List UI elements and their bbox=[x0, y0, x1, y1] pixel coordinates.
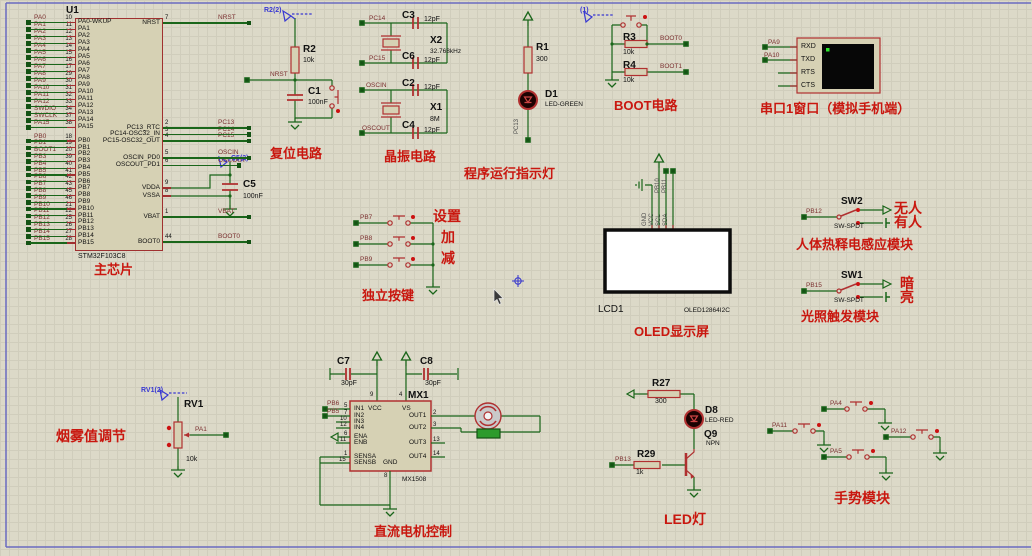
ref-r2: R2 bbox=[303, 45, 316, 55]
schematic-canvas: { "captions": { "chip": "主芯片", "reset": … bbox=[0, 0, 1032, 556]
net-pa12: PA12 bbox=[891, 429, 906, 436]
pin-stub-PA1 bbox=[67, 29, 75, 30]
mxn-vs: 4 bbox=[399, 392, 402, 398]
wire-OSCIN_PD0 bbox=[163, 157, 249, 158]
val-c1: 100nF bbox=[308, 99, 328, 106]
pin-stub-PB14 bbox=[67, 236, 75, 237]
ref-r4: R4 bbox=[623, 61, 636, 71]
terminal-OSCOUT_PD1 bbox=[237, 163, 242, 168]
caption-pir: 人体热释电感应模块 bbox=[796, 238, 913, 251]
rpin-name-BOOT0: BOOT0 bbox=[98, 239, 160, 246]
ref-c3: C3 bbox=[402, 11, 415, 21]
ref-r27: R27 bbox=[652, 379, 670, 389]
mx-gnd: GND bbox=[383, 460, 397, 467]
pin-number-PA0: 10 bbox=[50, 15, 72, 21]
pin-stub-PB11 bbox=[67, 215, 75, 216]
rpin-number-OSCIN_PD0: 5 bbox=[165, 150, 168, 156]
rpin-number-VDDA: 9 bbox=[165, 180, 168, 186]
net-pb13: PB13 bbox=[615, 457, 631, 464]
net-boot0: BOOT0 bbox=[660, 36, 682, 43]
mxn-sensb: 15 bbox=[339, 457, 346, 463]
net-pb12: PB12 bbox=[806, 209, 822, 216]
pin-stub-PA4 bbox=[67, 50, 75, 51]
val-sw1: SW-SPDT bbox=[834, 298, 864, 305]
terminal-PC15-OSC32_OUT bbox=[247, 139, 252, 144]
pin-stub-PA8 bbox=[67, 78, 75, 79]
ref-x1: X1 bbox=[430, 103, 442, 113]
sw1-bright-label: 亮 bbox=[900, 290, 914, 304]
ref-r3: R3 bbox=[623, 33, 636, 43]
caption-smoke: 烟雾值调节 bbox=[56, 429, 126, 443]
ref-sw2: SW2 bbox=[841, 197, 863, 207]
val-c6: 12pF bbox=[424, 57, 440, 64]
chip-part: STM32F103C8 bbox=[78, 253, 125, 260]
pin-stub-VDDA bbox=[163, 187, 171, 188]
net-pb5: PB5 bbox=[327, 409, 339, 416]
ref-x2: X2 bbox=[430, 36, 442, 46]
pin-stub-PA0 bbox=[67, 22, 75, 23]
ref-q9: Q9 bbox=[704, 430, 717, 440]
mxn-out1: 2 bbox=[433, 410, 436, 416]
ref-c7: C7 bbox=[337, 357, 350, 367]
val-c4: 12pF bbox=[424, 127, 440, 134]
pin-stub-PB7 bbox=[67, 188, 75, 189]
ref-lcd1: LCD1 bbox=[598, 305, 624, 315]
pin-stub-PA6 bbox=[67, 64, 75, 65]
mx-vcc: VCC bbox=[368, 406, 382, 413]
val-c8: 30pF bbox=[425, 380, 441, 387]
net-pb8: PB8 bbox=[360, 236, 372, 243]
val-rv1: 10k bbox=[186, 456, 197, 463]
rot-pb11: PB11 bbox=[662, 179, 668, 193]
ref-c4: C4 bbox=[402, 121, 415, 131]
rpin-name-VDDA: VDDA bbox=[98, 185, 160, 192]
ref-c6: C6 bbox=[402, 52, 415, 62]
pin-stub-PA11 bbox=[67, 99, 75, 100]
ref-c8: C8 bbox=[420, 357, 433, 367]
net-label-NRST: NRST bbox=[218, 15, 236, 22]
sw1-dark-label: 暗 bbox=[900, 276, 914, 290]
terminal-PC13_RTC bbox=[247, 126, 252, 131]
mxn-out2: 3 bbox=[433, 422, 436, 428]
rpin-number-PC13_RTC: 2 bbox=[165, 120, 168, 126]
sw2-somebody-label: 有人 bbox=[894, 215, 922, 229]
caption-keys: 独立按键 bbox=[362, 289, 414, 302]
pin-name-PB15: PB15 bbox=[78, 240, 94, 247]
wire-OSCOUT_PD1 bbox=[163, 165, 239, 166]
text-layer: U1 STM32F103C8 主芯片 复位电路 晶振电路 程序运行指示灯 BOO… bbox=[0, 0, 1032, 556]
net-pa4: PA4 bbox=[830, 401, 842, 408]
pin-stub-PA2 bbox=[67, 36, 75, 37]
key-inc-label: 加 bbox=[441, 230, 455, 244]
val-q9: NPN bbox=[706, 441, 720, 448]
val-x2: 32.768kHz bbox=[430, 49, 461, 56]
ref-r1: R1 bbox=[536, 43, 549, 53]
rpin-name-VBAT: VBAT bbox=[98, 214, 160, 221]
pin-stub-PA9 bbox=[67, 85, 75, 86]
caption-gesture: 手势模块 bbox=[834, 491, 890, 505]
val-c3: 12pF bbox=[424, 16, 440, 23]
pin-stub-PA12 bbox=[67, 106, 75, 107]
terminal-VBAT bbox=[247, 215, 252, 220]
net-pb6: PB6 bbox=[327, 401, 339, 408]
terminal-NRST bbox=[247, 21, 252, 26]
pin-stub-PA10 bbox=[67, 92, 75, 93]
rpin-number-VSSA: 8 bbox=[165, 188, 168, 194]
rot-oled-vcc: VCC bbox=[649, 213, 655, 226]
pin-stub-BOOT1 bbox=[67, 154, 75, 155]
mxn-out3: 13 bbox=[433, 437, 440, 443]
pin-txd: TXD bbox=[801, 56, 815, 63]
probe-rv1-label: RV1(2) bbox=[141, 387, 163, 394]
probe-r2-label: R2(2) bbox=[264, 7, 282, 14]
caption-oled: OLED显示屏 bbox=[634, 325, 709, 338]
net-pc15: PC15 bbox=[369, 56, 385, 63]
net-pa10: PA10 bbox=[764, 53, 779, 60]
pin-number-PB0: 18 bbox=[50, 134, 72, 140]
wire-PC14-OSC32_IN bbox=[163, 134, 249, 135]
net-pb9: PB9 bbox=[360, 257, 372, 264]
pin-stub-PA3 bbox=[67, 43, 75, 44]
caption-reset: 复位电路 bbox=[270, 147, 322, 160]
pin-stub-PA15 bbox=[67, 127, 75, 128]
wire-PC13_RTC bbox=[163, 127, 249, 128]
rpin-number-BOOT0: 44 bbox=[165, 234, 172, 240]
sw2-nobody-label: 无人 bbox=[894, 201, 922, 215]
val-r2: 10k bbox=[303, 57, 314, 64]
val-c2: 12pF bbox=[424, 84, 440, 91]
rpin-name-OSCOUT_PD1: OSCOUT_PD1 bbox=[98, 162, 160, 169]
rot-pb10: PB10 bbox=[655, 178, 661, 193]
pin-cts: CTS bbox=[801, 82, 815, 89]
ref-rv1: RV1 bbox=[184, 400, 203, 410]
val-x1: 8M bbox=[430, 116, 440, 123]
caption-motor: 直流电机控制 bbox=[374, 525, 452, 538]
ref-d1: D1 bbox=[545, 90, 558, 100]
rpin-number-NRST: 7 bbox=[165, 15, 168, 21]
val-c5: 100nF bbox=[243, 193, 263, 200]
caption-light: 光照触发模块 bbox=[801, 310, 879, 323]
ref-sw1: SW1 bbox=[841, 271, 863, 281]
rpin-name-NRST: NRST bbox=[98, 20, 160, 27]
val-c7: 30pF bbox=[341, 380, 357, 387]
mx-out2: OUT2 bbox=[409, 425, 426, 432]
val-oled: OLED12864I2C bbox=[684, 308, 730, 315]
val-r1: 300 bbox=[536, 56, 548, 63]
net-oscout: OSCOUT bbox=[362, 126, 390, 133]
net-label-OSCIN: OSCIN bbox=[218, 150, 239, 157]
key-set-label: 设置 bbox=[433, 209, 461, 223]
val-r3: 10k bbox=[623, 49, 634, 56]
rot-pc13: PC13 bbox=[514, 119, 520, 134]
mx-enb: ENB bbox=[354, 440, 367, 447]
net-pa1: PA1 bbox=[195, 427, 207, 434]
pin-stub-PB4 bbox=[67, 168, 75, 169]
mx-out3: OUT3 bbox=[409, 440, 426, 447]
wire-VBAT bbox=[163, 216, 249, 217]
pin-stub-PB15 bbox=[67, 242, 75, 243]
ref-d8: D8 bbox=[705, 406, 718, 416]
pin-stub-PB6 bbox=[67, 181, 75, 182]
val-r29: 1k bbox=[636, 469, 643, 476]
val-mx1: MX1508 bbox=[402, 477, 426, 484]
mx-sensb: SENSB bbox=[354, 460, 376, 467]
net-label-BOOT0: BOOT0 bbox=[218, 234, 240, 241]
mxn-out4: 14 bbox=[433, 451, 440, 457]
pin-stub-PA7 bbox=[67, 71, 75, 72]
net-pa9: PA9 bbox=[768, 40, 780, 47]
caption-chip: 主芯片 bbox=[94, 263, 133, 276]
rpin-name-PC15-OSC32_OUT: PC15-OSC32_OUT bbox=[98, 138, 160, 145]
rot-oled-gnd: GND bbox=[642, 213, 648, 226]
caption-crystal: 晶振电路 bbox=[384, 150, 436, 163]
pin-stub-PB8 bbox=[67, 195, 75, 196]
key-dec-label: 减 bbox=[441, 251, 455, 265]
mx-out1: OUT1 bbox=[409, 413, 426, 420]
caption-led: LED灯 bbox=[664, 512, 706, 526]
pin-stub-PB0 bbox=[67, 140, 75, 141]
mxn-in1: 5 bbox=[344, 403, 347, 409]
wire-NRST bbox=[163, 22, 249, 23]
rpin-number-VBAT: 1 bbox=[165, 209, 168, 215]
ref-r29: R29 bbox=[637, 450, 655, 460]
net-pb15: PB15 bbox=[806, 283, 822, 290]
terminal-OSCIN_PD0 bbox=[247, 156, 252, 161]
val-r4: 10k bbox=[623, 77, 634, 84]
val-r27: 300 bbox=[655, 398, 667, 405]
pin-stub-PB9 bbox=[67, 202, 75, 203]
ref-c1: C1 bbox=[308, 87, 321, 97]
mxn-in4: 12 bbox=[340, 422, 347, 428]
pin-stub-VSSA bbox=[163, 195, 171, 196]
pin-stub-SWCLK bbox=[67, 120, 75, 121]
net-pa5: PA5 bbox=[830, 449, 842, 456]
pin-stub-PB12 bbox=[67, 222, 75, 223]
val-d8: LED-RED bbox=[705, 418, 734, 425]
net-pa11: PA11 bbox=[772, 423, 787, 430]
mxn-gnd: 8 bbox=[384, 473, 387, 479]
net-pb7: PB7 bbox=[360, 215, 372, 222]
pin-stub-PB13 bbox=[67, 229, 75, 230]
pin-stub-PA5 bbox=[67, 57, 75, 58]
pin-name-PA15: PA15 bbox=[78, 124, 93, 131]
caption-boot: BOOT电路 bbox=[614, 99, 678, 112]
rot-oled-scl: SCL bbox=[656, 214, 662, 226]
net-pc14: PC14 bbox=[369, 16, 385, 23]
ref-c2: C2 bbox=[402, 79, 415, 89]
pin-rxd: RXD bbox=[801, 43, 816, 50]
mx-in4: IN4 bbox=[354, 425, 364, 432]
net-nrst: NRST bbox=[270, 72, 288, 79]
pin-stub-PB1 bbox=[67, 147, 75, 148]
ref-c5: C5 bbox=[243, 180, 256, 190]
terminal-PC14-OSC32_IN bbox=[247, 132, 252, 137]
pin-stub-PB3 bbox=[67, 161, 75, 162]
val-sw2: SW-SPDT bbox=[834, 224, 864, 231]
pin-rts: RTS bbox=[801, 69, 815, 76]
net-label-VBAT: VBAT bbox=[218, 209, 235, 216]
terminal-BOOT0 bbox=[247, 240, 252, 245]
pin-stub-SWDIO bbox=[67, 113, 75, 114]
caption-runled: 程序运行指示灯 bbox=[464, 167, 555, 180]
mxn-vcc: 9 bbox=[370, 392, 373, 398]
probe-boot-label: (1) bbox=[580, 7, 589, 14]
mxn-enb: 11 bbox=[340, 437, 346, 443]
rot-oled-sda: SDA bbox=[663, 214, 669, 226]
mx-out4: OUT4 bbox=[409, 454, 426, 461]
rpin-name-VSSA: VSSA bbox=[98, 193, 160, 200]
pin-stub-PB10 bbox=[67, 208, 75, 209]
net-boot1: BOOT1 bbox=[660, 64, 682, 71]
pin-stub-PB5 bbox=[67, 174, 75, 175]
wire-BOOT0 bbox=[163, 241, 249, 242]
wire-PC15-OSC32_OUT bbox=[163, 140, 249, 141]
val-d1: LED-GREEN bbox=[545, 102, 583, 109]
ref-mx1: MX1 bbox=[408, 391, 429, 401]
caption-serial: 串口1窗口（模拟手机端） bbox=[760, 102, 910, 115]
net-oscin: OSCIN bbox=[366, 83, 387, 90]
